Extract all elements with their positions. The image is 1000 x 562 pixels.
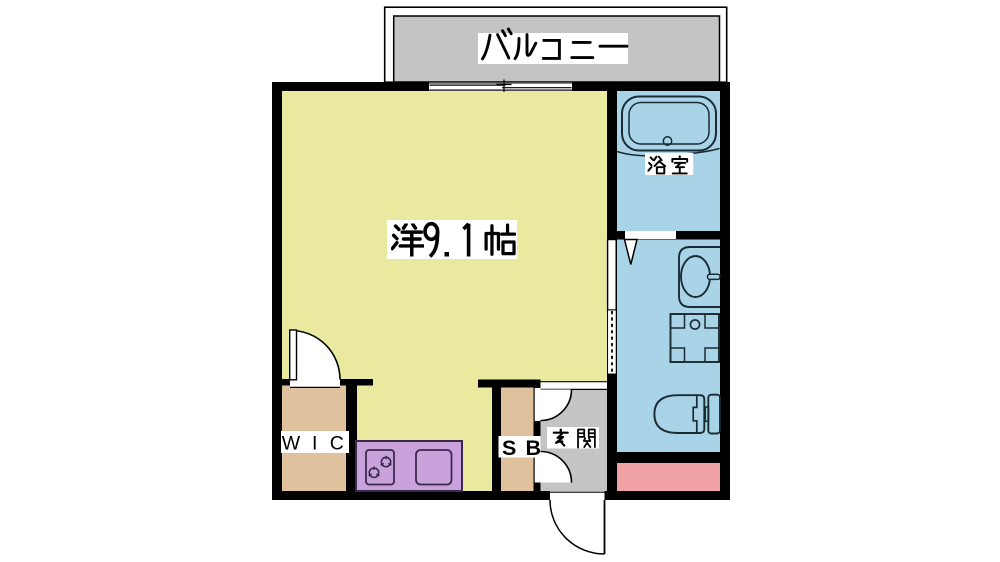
svg-text:B: B	[526, 436, 542, 460]
svg-text:C: C	[330, 433, 344, 455]
svg-text:W: W	[282, 433, 301, 455]
svg-text:S: S	[502, 436, 516, 460]
svg-text:I: I	[312, 433, 317, 455]
